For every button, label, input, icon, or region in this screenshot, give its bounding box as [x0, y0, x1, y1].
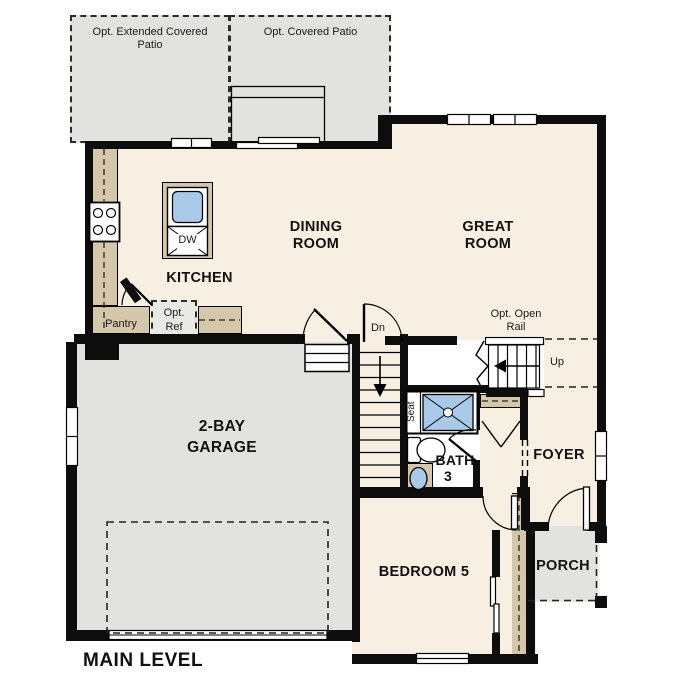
garage-entry-steps: [305, 345, 349, 372]
window: [67, 408, 78, 466]
coat-closet-doors: [482, 421, 520, 447]
opt-open-rail-label: Opt. Open Rail: [477, 308, 555, 334]
window: [417, 654, 469, 664]
opt-ref-label: Opt. Ref: [151, 306, 197, 334]
window: [494, 115, 537, 125]
front-door: [548, 487, 590, 530]
shower-seat-label: Seat: [406, 392, 420, 432]
dining-room-label: DINING ROOM: [256, 219, 376, 253]
bath-label: BATH: [432, 452, 478, 469]
foyer-label: FOYER: [518, 447, 600, 464]
stairs-up-label: Up: [543, 356, 571, 369]
stove-icon: [90, 203, 120, 242]
garage-entry-door: [303, 309, 347, 341]
plan-linework: [0, 0, 687, 687]
bedroom-label: BEDROOM 5: [354, 564, 494, 581]
closet-bypass-doors: [491, 577, 500, 633]
garage-door: [107, 522, 328, 640]
bathroom-sink-icon: [410, 468, 427, 490]
stairs-down: [360, 353, 400, 478]
kitchen-label: KITCHEN: [152, 270, 247, 287]
window: [448, 115, 491, 125]
stairs-down-label: Dn: [363, 322, 393, 335]
pantry-label: Pantry: [92, 318, 150, 331]
great-room-label: GREAT ROOM: [428, 219, 548, 253]
garage-label: 2-BAY GARAGE: [152, 416, 292, 458]
bedroom-door: [483, 496, 518, 530]
covered-patio-structure: [232, 87, 325, 143]
stairs-up: [476, 338, 544, 397]
sliding-patio-door: [237, 138, 320, 149]
dishwasher-label: DW: [167, 234, 208, 247]
kitchen-sink-icon: [168, 188, 208, 227]
window: [172, 139, 212, 148]
floor-plan: Opt. Extended Covered Patio Opt. Covered…: [0, 0, 687, 687]
porch-label: PORCH: [520, 558, 606, 575]
bath-number-label: 3: [438, 468, 458, 485]
main-level-title: MAIN LEVEL: [83, 650, 203, 672]
patio-extended-label: Opt. Extended Covered Patio: [75, 26, 225, 52]
pantry-door: [122, 284, 152, 305]
patio-covered-label: Opt. Covered Patio: [233, 26, 388, 39]
